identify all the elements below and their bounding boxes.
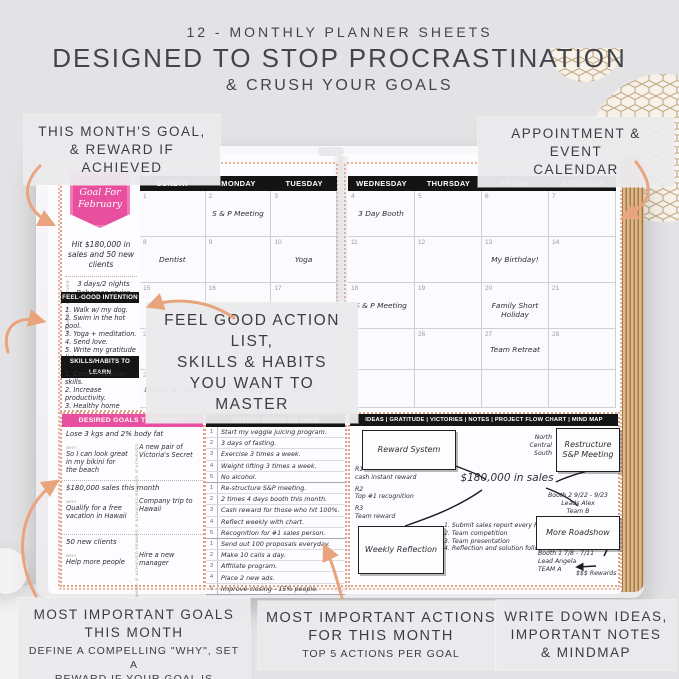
action-step-text: 2 times 4 days booth this month.	[218, 495, 327, 503]
calendar-cell: 9	[206, 237, 272, 283]
goal-badge-line2: February	[78, 199, 122, 211]
action-step-number: 5	[206, 528, 218, 538]
action-step-text: Cash reward for those who hit 100%.	[218, 506, 340, 514]
calendar-cell: 26	[415, 329, 482, 370]
action-step-row: 5No alcohol.	[206, 472, 345, 483]
action-step-number: 3	[206, 505, 218, 515]
bookmark-tab	[318, 147, 344, 156]
calendar-day-number: 12	[418, 239, 425, 246]
mindmap-center-goal: $180,000 in sales	[442, 472, 572, 484]
feel-good-header: FEEL-GOOD INTENTION	[61, 292, 139, 303]
callout-bottom-center-sub: TOP 5 ACTIONS PER GOAL	[264, 647, 498, 661]
callout-bottom-left-line1: MOST IMPORTANT GOALS	[24, 606, 244, 624]
calendar-day-header: TUESDAY	[271, 176, 337, 191]
calendar-cell: 5	[415, 191, 482, 237]
action-step-number: 1	[206, 427, 218, 437]
calendar-entry: My Birthday!	[484, 255, 546, 264]
region-note: North	[514, 434, 552, 442]
callout-bottom-center-line1: MOST IMPORTANT ACTIONS	[264, 609, 498, 627]
action-step-text: Recognition for #1 sales person.	[218, 529, 325, 537]
calendar-day-number: 10	[274, 239, 281, 246]
goal-reward-text: Hire a new manager	[139, 551, 194, 604]
action-step-number: 2	[206, 494, 218, 504]
feel-good-item: 1. Walk w/ my dog.	[65, 306, 139, 314]
action-step-number: 3	[206, 449, 218, 459]
calendar-day-number: 7	[552, 193, 556, 200]
calendar-day-header: WEDNESDAY	[348, 176, 415, 191]
action-step-row: 1Start my veggie juicing program.	[206, 427, 345, 438]
calendar-cell: 3	[271, 191, 337, 237]
headline: 12 - MONTHLY PLANNER SHEETS DESIGNED TO …	[0, 24, 679, 95]
calendar-cell	[549, 370, 616, 408]
reward-note-label: R3	[355, 505, 425, 513]
callout-top-right: APPOINTMENT & EVENT CALENDAR	[478, 117, 674, 187]
calendar-entry: Dentist	[142, 255, 203, 264]
action-step-number: 2	[206, 550, 218, 560]
booth1-line: Booth 1 7/8 - 7/11	[538, 550, 600, 558]
callout-center-line2: SKILLS & HABITS	[152, 352, 352, 373]
action-step-row: 4Weight lifting 3 times a week.	[206, 461, 345, 472]
calendar-cell: 13My Birthday!	[482, 237, 549, 283]
desired-goal-row: $180,000 sales this monthWHYQualify for …	[62, 481, 203, 535]
action-step-number: 4	[206, 517, 218, 527]
booth2-line: Team B	[542, 508, 614, 516]
feel-good-item: 2. Swim in the hot pool.	[65, 314, 139, 330]
callout-top-left-line2: & REWARD IF ACHIEVED	[30, 141, 214, 177]
callout-bottom-left-sub2: REWARD IF YOUR GOAL IS ACHIEVED	[24, 672, 244, 679]
booth1-line: Lead Angela	[538, 558, 600, 566]
action-step-text: 3 days of fasting.	[218, 439, 276, 447]
action-step-number: 4	[206, 572, 218, 582]
action-step-text: Affiliate program.	[218, 562, 277, 570]
callout-bottom-left: MOST IMPORTANT GOALS THIS MONTH DEFINE A…	[18, 598, 250, 679]
calendar-cell	[415, 370, 482, 408]
region-note: Central	[514, 442, 552, 450]
action-step-text: Send out 100 proposals everyday.	[218, 540, 330, 548]
calendar-grid: 43 Day Booth567111213My Birthday!1418S &…	[348, 191, 616, 408]
desired-goals-rows: Lose 3 kgs and 2% body fatWHYSo I can lo…	[62, 427, 203, 588]
calendar-cell: 19	[415, 283, 482, 329]
action-step-number: 4	[206, 461, 218, 471]
calendar-entry: S & P Meeting	[208, 209, 269, 218]
month-goal-panel: Goal For February Hit $180,000 in sales …	[60, 166, 142, 412]
calendar-day-number: 28	[552, 331, 559, 338]
calendar-day-number: 4	[351, 193, 355, 200]
skills-item: 2. Increase productivity.	[65, 386, 139, 402]
calendar-day-number: 20	[485, 285, 492, 292]
calendar-cell: 25	[348, 329, 415, 370]
callout-bottom-left-line2: THIS MONTH	[24, 624, 244, 642]
desired-goals-panel: DESIRED GOALS THIS MONTH Lose 3 kgs and …	[60, 412, 205, 587]
feel-good-item: 4. Send love.	[65, 338, 139, 346]
action-step-number: 1	[206, 539, 218, 549]
action-step-text: Start my veggie juicing program.	[218, 428, 327, 436]
calendar-day-number: 14	[552, 239, 559, 246]
calendar-cell: 18S & P Meeting	[348, 283, 415, 329]
goal-why: WHYSo I can look great in my bikini for …	[66, 445, 128, 474]
goal-why: WHYHelp more people	[66, 553, 128, 566]
calendar-day-number: 5	[418, 193, 422, 200]
callout-center-line3: YOU WANT TO MASTER	[152, 373, 352, 415]
calendar-cell: 1	[140, 191, 206, 237]
mindmap-rewards-note: $$$ Rewards	[576, 570, 618, 578]
callout-top-left: THIS MONTH'S GOAL, & REWARD IF ACHIEVED	[24, 115, 220, 185]
calendar-day-header: THURSDAY	[415, 176, 482, 191]
calendar-cell: 11	[348, 237, 415, 283]
calendar-entry: Family Short Holiday	[484, 301, 546, 319]
action-step-row: 5Recognition for #1 sales person.	[206, 528, 345, 539]
calendar-day-number: 17	[274, 285, 281, 292]
calendar-entry: Yoga	[273, 255, 334, 264]
booth2-line: Booth 2 9/22 - 9/23	[542, 492, 614, 500]
calendar-day-number: 15	[143, 285, 150, 292]
action-steps-rows: 1Start my veggie juicing program.23 days…	[206, 427, 345, 595]
desired-goal-row: 50 new clientsWHYHelp more peopleREWARD …	[62, 535, 203, 588]
headline-line3: & CRUSH YOUR GOALS	[0, 77, 679, 95]
action-step-row: 1Send out 100 proposals everyday.	[206, 539, 345, 550]
goal-reward: REWARD IF ACHIEVEDHire a new manager	[134, 551, 194, 604]
goal-text: 50 new clients	[66, 538, 199, 547]
region-note: South	[514, 450, 552, 458]
mindmap-box-more-roadshow: More Roadshow	[536, 516, 620, 550]
calendar-day-number: 16	[209, 285, 216, 292]
action-step-row: 5Improve closing - 15% people.	[206, 584, 345, 595]
mindmap-box-reward-system: Reward System	[362, 430, 456, 470]
action-step-row: 3Exercise 3 times a week.	[206, 449, 345, 460]
action-step-text: Place 2 new ads.	[218, 574, 275, 582]
action-steps-panel: ACTION STEPS TO TAKE 1Start my veggie ju…	[204, 412, 347, 587]
calendar-day-number: 8	[143, 239, 147, 246]
goal-badge-line1: Goal For	[79, 187, 120, 199]
action-step-row: 3Cash reward for those who hit 100%.	[206, 505, 345, 516]
callout-top-left-line1: THIS MONTH'S GOAL,	[30, 123, 214, 141]
action-step-number: 1	[206, 483, 218, 493]
reward-note-text: Team reward	[355, 513, 425, 521]
mindmap-box-weekly-reflection: Weekly Reflection	[358, 526, 444, 574]
calendar-day-number: 13	[485, 239, 492, 246]
goal-text: Lose 3 kgs and 2% body fat	[66, 430, 199, 439]
action-step-row: 1Re-structure S&P meeting.	[206, 483, 345, 494]
calendar-cell: 20Family Short Holiday	[482, 283, 549, 329]
calendar-day-number: 21	[552, 285, 559, 292]
callout-bottom-right-line3: & MINDMAP	[502, 644, 670, 662]
why-text: So I can look great in my bikini for the…	[66, 450, 128, 474]
calendar-cell: 7	[549, 191, 616, 237]
action-step-row: 23 days of fasting.	[206, 438, 345, 449]
desired-goal-row: Lose 3 kgs and 2% body fatWHYSo I can lo…	[62, 427, 203, 481]
calendar-cell: 6	[482, 191, 549, 237]
action-step-row: 22 times 4 days booth this month.	[206, 494, 345, 505]
mindmap-box-restructure: Restructure S&P Meeting	[556, 428, 620, 472]
calendar-entry: 3 Day Booth	[350, 209, 412, 218]
callout-top-right-line1: APPOINTMENT & EVENT	[484, 125, 668, 161]
action-step-text: Reflect weekly with chart.	[218, 518, 304, 526]
action-step-row: 4Reflect weekly with chart.	[206, 517, 345, 528]
action-step-number: 5	[206, 472, 218, 482]
calendar-right-page: WEDNESDAYTHURSDAYFRIDAYSATURDAY43 Day Bo…	[348, 176, 616, 408]
goal-why: WHYQualify for a free vacation in Hawaii	[66, 499, 128, 520]
calendar-cell: 8Dentist	[140, 237, 206, 283]
mindmap-regions: NorthCentralSouth	[514, 434, 552, 457]
calendar-cell: 21	[549, 283, 616, 329]
callout-bottom-center-line2: FOR THIS MONTH	[264, 627, 498, 645]
callout-top-right-line2: CALENDAR	[484, 161, 668, 179]
callout-bottom-left-sub1: DEFINE A COMPELLING "WHY", SET A	[24, 644, 244, 672]
goal-reward-label: REWARD IF ACHIEVED	[134, 551, 139, 604]
action-step-row: 3Affiliate program.	[206, 561, 345, 572]
why-text: Help more people	[66, 558, 128, 566]
callout-bottom-right-line1: WRITE DOWN IDEAS,	[502, 608, 670, 626]
action-step-number: 3	[206, 561, 218, 571]
calendar-cell: 43 Day Booth	[348, 191, 415, 237]
calendar-entry: S & P Meeting	[350, 301, 412, 310]
callout-center: FEEL GOOD ACTION LIST, SKILLS & HABITS Y…	[146, 302, 358, 423]
month-goal-text: Hit $180,000 in sales and 50 new clients	[65, 240, 137, 270]
action-step-row: 4Place 2 new ads.	[206, 572, 345, 583]
calendar-day-number: 27	[485, 331, 492, 338]
calendar-day-number: 11	[351, 239, 358, 246]
mindmap-reward-notes: R1cash instant rewardR2Top #1 recognitio…	[355, 466, 425, 525]
skills-item: 1. Communication skills.	[65, 370, 139, 386]
callout-bottom-right-line2: IMPORTANT NOTES	[502, 626, 670, 644]
action-step-text: Make 10 calls a day.	[218, 551, 286, 559]
headline-line2: DESIGNED TO STOP PROCRASTINATION	[0, 43, 679, 74]
callout-bottom-center: MOST IMPORTANT ACTIONS FOR THIS MONTH TO…	[258, 601, 504, 669]
calendar-cell: 28	[549, 329, 616, 370]
goal-text: $180,000 sales this month	[66, 484, 199, 493]
calendar-cell: 12	[415, 237, 482, 283]
booth2-line: Leads Alex	[542, 500, 614, 508]
reward-note-label: R1	[355, 466, 425, 474]
calendar-cell	[348, 370, 415, 408]
action-step-text: No alcohol.	[218, 473, 257, 481]
action-step-row: 2Make 10 calls a day.	[206, 550, 345, 561]
feel-good-item: 3. Yoga + meditation.	[65, 330, 139, 338]
mindmap-panel: IDEAS | GRATITUDE | VICTORIES | NOTES | …	[348, 412, 620, 587]
calendar-day-number: 19	[418, 285, 425, 292]
calendar-day-number: 3	[274, 193, 278, 200]
headline-line1: 12 - MONTHLY PLANNER SHEETS	[0, 24, 679, 40]
why-text: Qualify for a free vacation in Hawaii	[66, 504, 128, 520]
action-step-number: 5	[206, 584, 218, 594]
calendar-cell	[482, 370, 549, 408]
callout-bottom-right: WRITE DOWN IDEAS, IMPORTANT NOTES & MIND…	[496, 600, 676, 670]
action-step-text: Exercise 3 times a week.	[218, 450, 301, 458]
action-step-number: 2	[206, 438, 218, 448]
calendar-entry: Team Retreat	[484, 345, 546, 354]
calendar-day-number: 6	[485, 193, 489, 200]
reward-note-text: cash instant reward	[355, 474, 425, 482]
mindmap-canvas: Reward System NorthCentralSouth Restruct…	[350, 414, 618, 585]
calendar-cell: 10Yoga	[271, 237, 337, 283]
calendar-day-number: 18	[351, 285, 358, 292]
reward-note-text: Top #1 recognition	[355, 493, 425, 501]
calendar-day-number: 2	[209, 193, 213, 200]
calendar-cell: 2S & P Meeting	[206, 191, 272, 237]
mindmap-booth2-notes: Booth 2 9/22 - 9/23Leads AlexTeam B	[542, 492, 614, 515]
calendar-day-number: 26	[418, 331, 425, 338]
calendar-day-number: 9	[209, 239, 213, 246]
action-step-text: Improve closing - 15% people.	[218, 585, 318, 593]
callout-center-line1: FEEL GOOD ACTION LIST,	[152, 310, 352, 352]
planner-product-image: 12 - MONTHLY PLANNER SHEETS DESIGNED TO …	[0, 0, 679, 679]
action-step-text: Re-structure S&P meeting.	[218, 484, 306, 492]
calendar-cell: 14	[549, 237, 616, 283]
action-step-text: Weight lifting 3 times a week.	[218, 462, 317, 470]
calendar-day-number: 1	[143, 193, 147, 200]
calendar-cell: 27Team Retreat	[482, 329, 549, 370]
